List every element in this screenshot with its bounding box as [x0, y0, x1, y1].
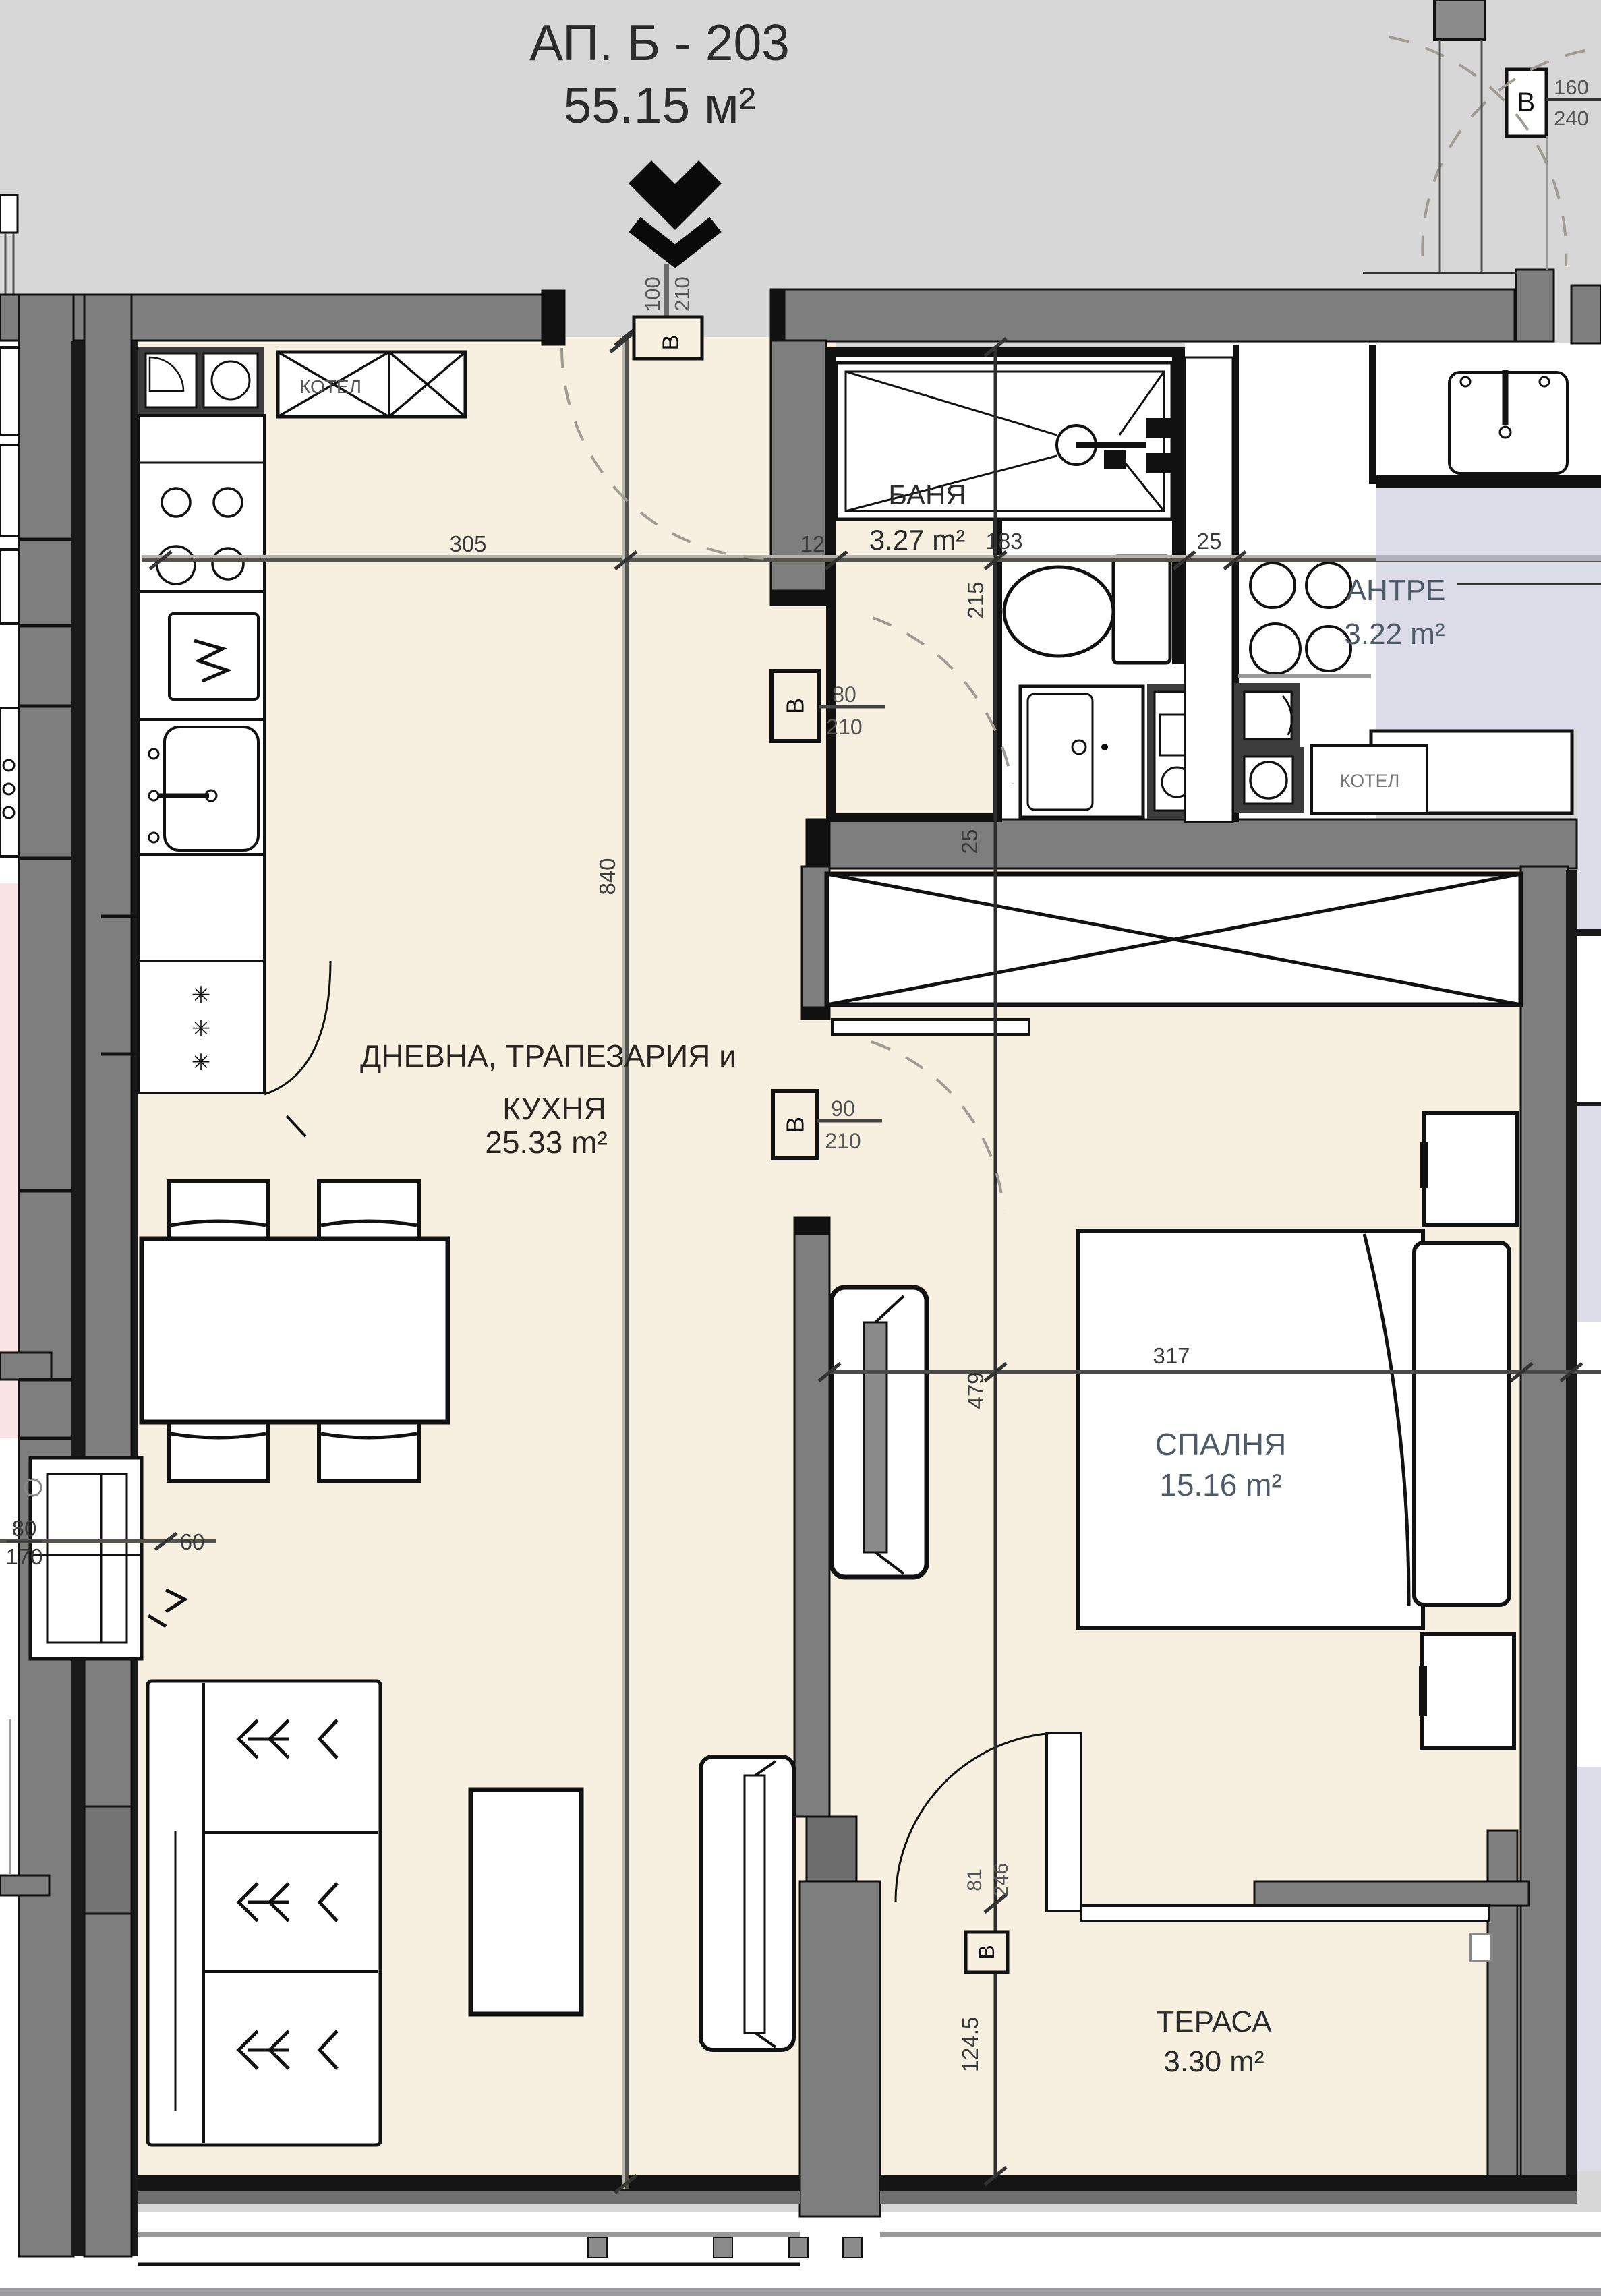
svg-text:317: 317: [1153, 1343, 1190, 1368]
svg-text:124.5: 124.5: [958, 2017, 983, 2073]
svg-text:3.27 m²: 3.27 m²: [869, 524, 965, 556]
svg-text:240: 240: [1554, 107, 1589, 130]
svg-text:В: В: [782, 698, 809, 714]
svg-text:3.22 m²: 3.22 m²: [1344, 618, 1445, 651]
svg-text:В: В: [658, 335, 684, 351]
svg-text:246: 246: [990, 1863, 1012, 1897]
svg-text:КУХНЯ: КУХНЯ: [502, 1091, 606, 1126]
svg-text:160: 160: [1554, 76, 1589, 99]
svg-text:✳: ✳: [192, 1050, 211, 1076]
svg-text:210: 210: [670, 276, 694, 312]
svg-text:15.16 m²: 15.16 m²: [1159, 1467, 1282, 1502]
svg-text:210: 210: [825, 1129, 861, 1153]
svg-text:✳: ✳: [192, 982, 211, 1008]
svg-text:12: 12: [800, 531, 825, 556]
svg-text:3.30 m²: 3.30 m²: [1163, 2045, 1264, 2078]
svg-text:80: 80: [832, 682, 856, 707]
svg-text:ТЕРАСА: ТЕРАСА: [1156, 2005, 1272, 2038]
svg-text:100: 100: [641, 276, 664, 312]
svg-text:81: 81: [964, 1868, 986, 1891]
svg-text:215: 215: [963, 581, 988, 618]
svg-text:210: 210: [826, 715, 862, 739]
svg-text:60: 60: [180, 1529, 205, 1554]
svg-text:В: В: [974, 1945, 999, 1959]
svg-text:АНТРЕ: АНТРЕ: [1347, 574, 1446, 607]
svg-text:ДНЕВНА, ТРАПЕЗАРИЯ и: ДНЕВНА, ТРАПЕЗАРИЯ и: [360, 1038, 736, 1073]
svg-text:183: 183: [985, 529, 1022, 554]
svg-text:25: 25: [957, 829, 982, 854]
svg-text:КОТЕЛ: КОТЕЛ: [299, 376, 361, 397]
svg-text:АП. Б - 203: АП. Б - 203: [529, 14, 790, 71]
svg-text:✳: ✳: [192, 1016, 211, 1042]
svg-text:55.15 м²: 55.15 м²: [563, 77, 755, 134]
svg-text:СПАЛНЯ: СПАЛНЯ: [1155, 1427, 1287, 1462]
svg-text:25: 25: [1197, 529, 1222, 554]
svg-text:90: 90: [831, 1096, 855, 1121]
svg-text:840: 840: [595, 858, 620, 895]
svg-text:КОТЕЛ: КОТЕЛ: [1340, 771, 1400, 791]
svg-text:80: 80: [12, 1516, 37, 1541]
svg-text:479: 479: [963, 1372, 988, 1409]
svg-text:305: 305: [449, 531, 486, 556]
svg-text:В: В: [782, 1117, 809, 1133]
svg-text:БАНЯ: БАНЯ: [888, 479, 966, 510]
svg-text:25.33 m²: 25.33 m²: [485, 1125, 608, 1160]
svg-text:В: В: [1517, 88, 1536, 117]
svg-text:170: 170: [5, 1544, 42, 1569]
